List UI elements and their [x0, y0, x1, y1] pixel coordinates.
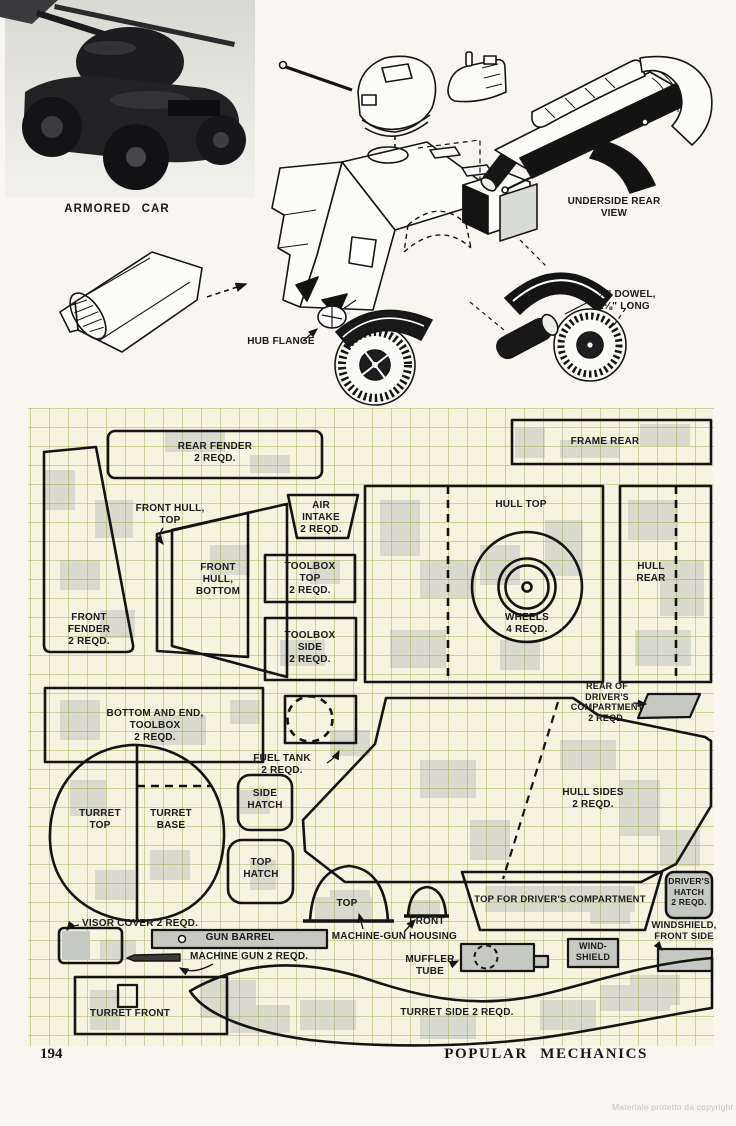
copyright-watermark: Materiale protetto da copyright [520, 1102, 733, 1112]
label-drivers-hatch: DRIVER'S HATCH 2 REQD. [659, 876, 719, 908]
page-number: 194 [40, 1046, 63, 1063]
label-machine-gun-top: TOP [317, 898, 377, 910]
label-housing-word: HOUSING [398, 931, 468, 943]
label-windshield-front-side: WINDSHIELD, FRONT SIDE [624, 920, 736, 942]
label-wheels: WHEELS 4 REQD. [467, 612, 587, 636]
label-toolbox-top: TOOLBOX TOP 2 REQD. [260, 561, 360, 596]
underside-rear-view-label: UNDERSIDE REAR VIEW [549, 196, 679, 220]
label-front-word: FRONT [396, 916, 458, 928]
label-turret-side: TURRET SIDE 2 REQD. [377, 1007, 537, 1019]
label-frame-rear: FRAME REAR [540, 436, 670, 448]
label-machine-gun: MACHINE GUN 2 REQD. [190, 951, 350, 963]
label-muffler-tube: MUFFLER TUBE [380, 954, 480, 978]
photo-caption: ARMORED CAR [42, 203, 192, 217]
label-turret-front: TURRET FRONT [70, 1008, 190, 1020]
label-top-hatch: TOP HATCH [216, 857, 306, 881]
label-turret-base: TURRET BASE [126, 808, 216, 832]
label-rear-drivers-compartment: REAR OF DRIVER'S COMPARTMENT 2 REQD. [547, 681, 667, 723]
label-air-intake: AIR INTAKE 2 REQD. [276, 500, 366, 535]
armored-car-photo [0, 0, 255, 198]
label-side-hatch: SIDE HATCH [220, 788, 310, 812]
label-toolbox-side: TOOLBOX SIDE 2 REQD. [260, 630, 360, 665]
magazine-title: POPULAR MECHANICS [418, 1046, 648, 1063]
dowel-label: ¾" DOWEL, 1⅛" LONG [598, 289, 708, 313]
label-hull-sides: HULL SIDES 2 REQD. [523, 787, 663, 811]
label-bottom-end-toolbox: BOTTOM AND END, TOOLBOX 2 REQD. [75, 708, 235, 743]
label-gun-barrel: GUN BARREL [180, 932, 300, 944]
label-wind-shield: WIND- SHIELD [563, 941, 623, 962]
label-hull-rear: HULL REAR [611, 561, 691, 585]
label-front-hull-top: FRONT HULL, TOP [110, 503, 230, 527]
label-hull-top: HULL TOP [451, 499, 591, 511]
label-front-fender: FRONT FENDER 2 REQD. [39, 612, 139, 647]
hub-flange-label: HUB FLANGE [226, 336, 336, 348]
label-front-hull-bottom: FRONT HULL, BOTTOM [168, 562, 268, 597]
label-rear-fender: REAR FENDER 2 REQD. [140, 441, 290, 465]
piece-machine-gun-rod [127, 954, 180, 961]
label-top-drivers-compartment: TOP FOR DRIVER'S COMPARTMENT [470, 894, 650, 905]
label-fuel-tank: FUEL TANK 2 REQD. [227, 753, 337, 777]
label-visor-cover: VISOR COVER 2 REQD. [82, 918, 242, 930]
magazine-page: ARMORED CAR UNDERSIDE REAR VIEW HUB FLAN… [0, 0, 736, 1126]
